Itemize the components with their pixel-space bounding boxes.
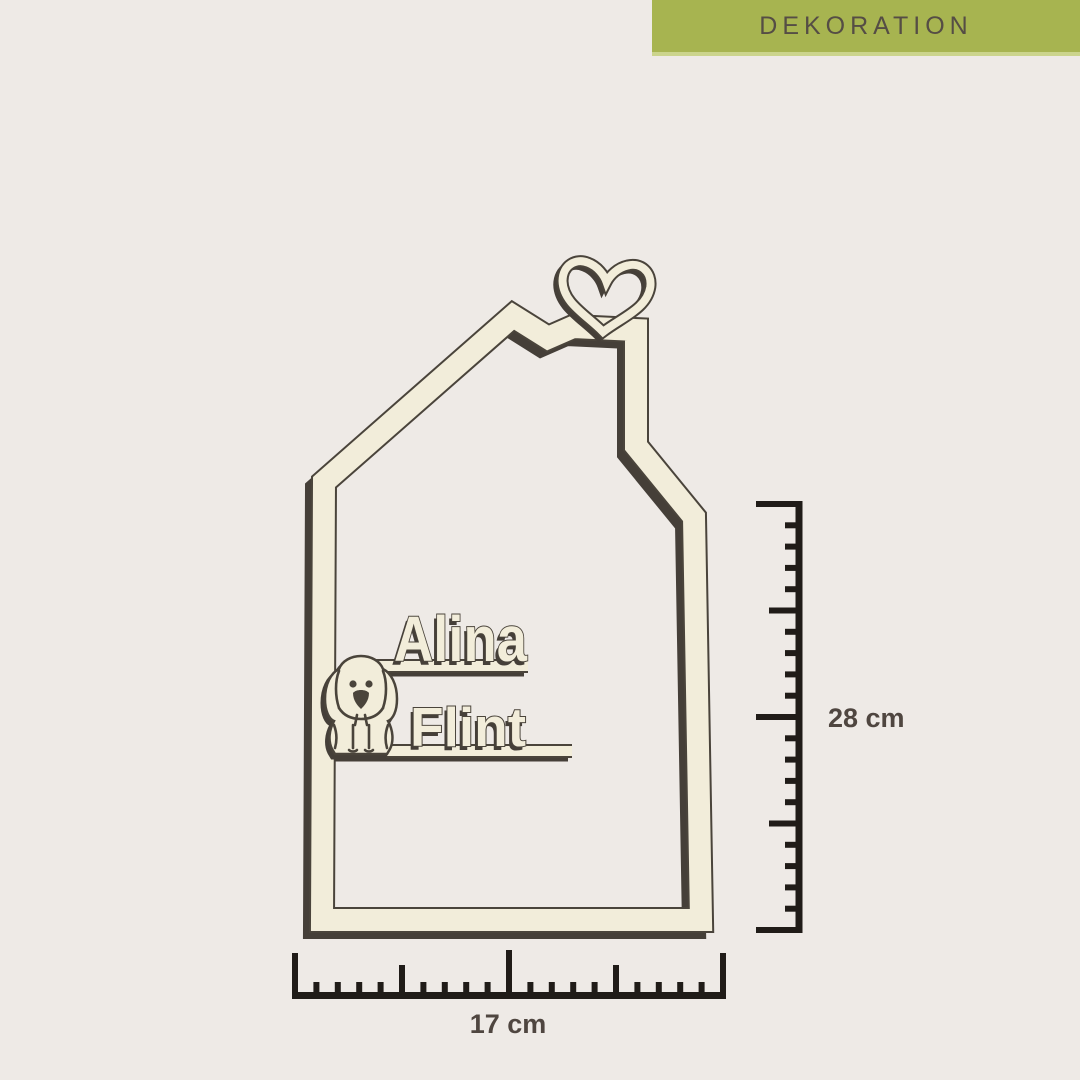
dog-left-eye (349, 680, 356, 687)
height-ruler-ticks (756, 504, 801, 930)
name-texts: Alina Alina Flint Flint (391, 603, 527, 762)
height-ruler: 28 cm (756, 501, 905, 933)
width-ruler: 17 cm (292, 950, 726, 1039)
scene: Alina Alina Flint Flint 28 cm 17 cm (0, 0, 1080, 1080)
product-image: { "banner": { "label": "DEKORATION" }, "… (0, 0, 1080, 1080)
width-ruler-ticks (295, 950, 723, 998)
height-label: 28 cm (828, 703, 905, 733)
name2-text: Flint (410, 696, 526, 758)
name1-text: Alina (394, 603, 527, 675)
width-label: 17 cm (470, 1009, 547, 1039)
dog-right-eye (365, 680, 372, 687)
